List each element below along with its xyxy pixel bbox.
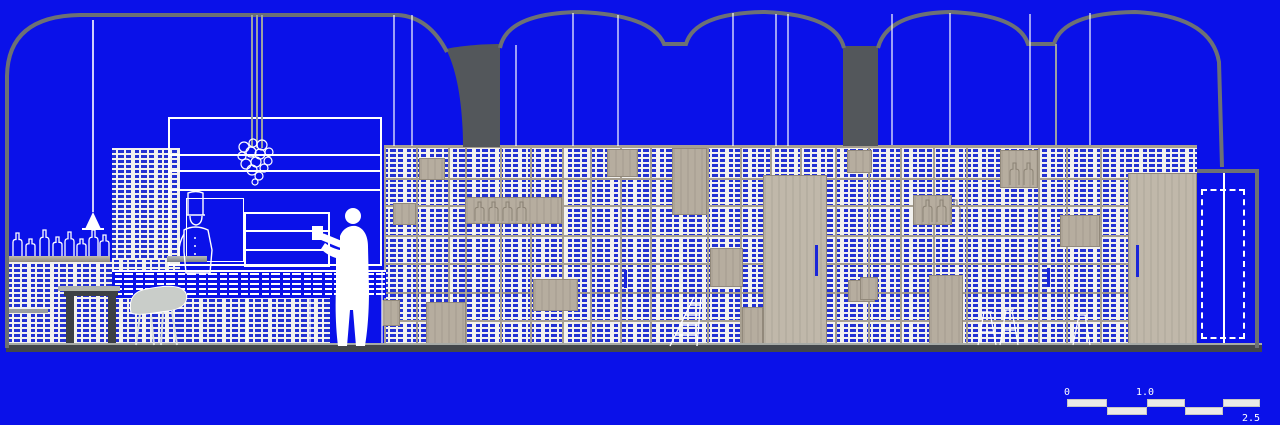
pier [843,46,878,146]
back-counter-unit [186,198,244,262]
door-handle [624,270,627,288]
scale-bar: 0 1.0 2.5 [1060,383,1272,425]
display-case [244,212,330,267]
wall-grid-line [562,145,564,347]
wood-panel [607,149,638,177]
pier [446,44,500,147]
wall-grid-line [650,145,652,347]
door-handle [1136,245,1139,277]
bar-counter [112,270,386,298]
feature-wall [384,145,1197,347]
table-leg [108,296,116,347]
wall-grid-line [416,145,418,347]
bottle-outline [100,235,109,256]
mirror-shelf-line [170,154,380,156]
mirror-shelf-line [170,170,380,172]
bottle-outline [13,233,22,256]
wood-panel [465,197,562,224]
wall-grid-line [500,145,502,347]
bottle-outline [40,230,49,256]
wood-panel [913,195,952,225]
bar-front-texture [180,297,330,347]
dashed-panel [1197,173,1252,347]
pendant-lamp [82,20,104,229]
bottle-outline [65,232,74,256]
mirror-shelf-line [170,189,380,191]
door-handle [815,245,818,276]
wood-panel [426,302,466,344]
case-shelf-line [246,249,328,251]
scale-segment [1223,399,1260,407]
wood-panel [1000,150,1038,188]
wall-grid-line [707,145,709,347]
wall-grid-line [835,145,837,347]
wall-top-rail [384,145,1197,148]
wood-panel [1060,215,1100,247]
scale-segment [1067,399,1107,407]
section-elevation-drawing: 0 1.0 2.5 [0,0,1280,425]
wall-grid-line [1038,145,1040,347]
wall-grid-line [1100,145,1102,347]
case-shelf-line [246,230,328,232]
wood-panel [382,300,400,326]
scale-segment [1147,399,1185,407]
wall-grid-line [966,145,968,347]
scale-segment [1107,407,1147,415]
wall-grid-line [868,145,870,347]
wood-panel [929,275,963,345]
bottle-shelf [8,256,110,262]
door-handle [1047,268,1050,287]
floor [6,343,1262,352]
wall-grid-line [900,145,902,347]
scale-segment [1185,407,1223,415]
wood-panel [393,203,416,225]
side-shelf [167,256,207,262]
wood-panel [742,307,763,345]
bottle-outline [53,237,62,256]
table-leg [66,296,74,347]
bottle-outline [26,239,35,256]
bottle-outline [77,239,86,256]
wood-panel [533,279,578,311]
wood-panel [672,148,707,215]
wood-panel [710,248,743,287]
wall-grid-line [590,145,592,347]
wood-panel [860,277,878,300]
scale-label-2-5: 2.5 [1242,413,1260,424]
bottle-outline [89,230,98,256]
wall-grid-line [530,145,532,347]
scale-label-1-0: 1.0 [1136,387,1154,398]
scale-label-0: 0 [1064,387,1070,398]
mini-shelf [8,309,48,313]
panel-center-line [1223,173,1225,347]
wood-panel [419,158,445,180]
wood-panel [847,150,872,173]
